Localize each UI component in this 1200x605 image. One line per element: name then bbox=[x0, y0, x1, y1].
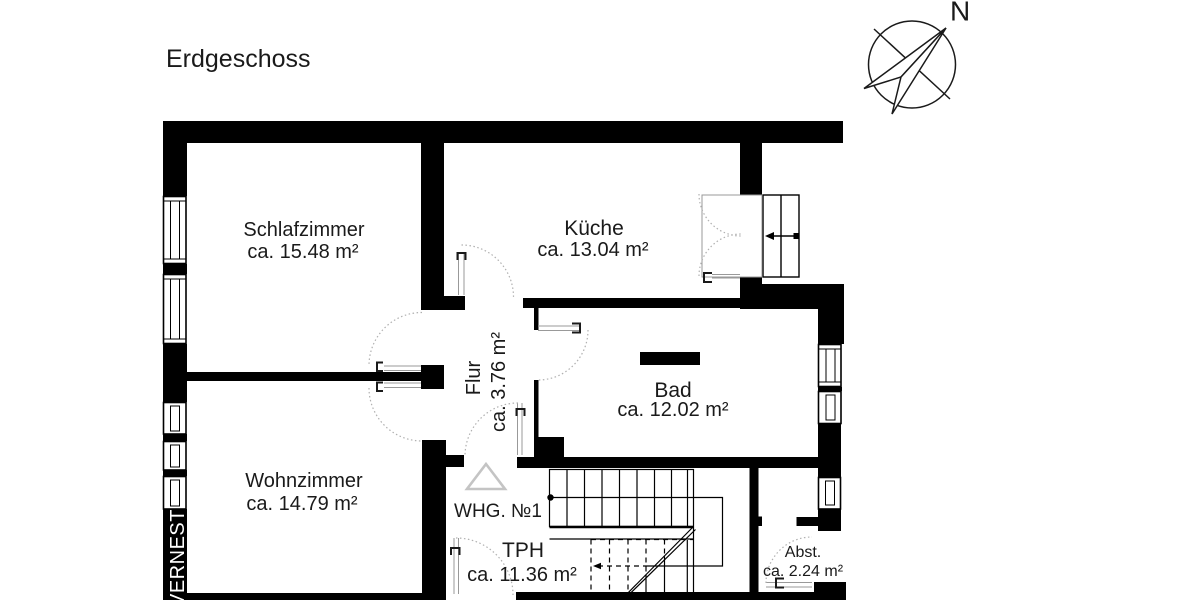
svg-text:Küche: Küche bbox=[564, 217, 624, 240]
svg-text:ca. 12.02 m²: ca. 12.02 m² bbox=[617, 399, 729, 421]
svg-text:Erdgeschoss: Erdgeschoss bbox=[166, 45, 311, 73]
svg-text:ca. 2.24 m²: ca. 2.24 m² bbox=[763, 563, 844, 580]
svg-text:ca. 14.79 m²: ca. 14.79 m² bbox=[246, 493, 358, 515]
svg-text:WHG. №1: WHG. №1 bbox=[454, 501, 542, 522]
svg-text:ca. 15.48 m²: ca. 15.48 m² bbox=[247, 241, 359, 263]
svg-text:TPH: TPH bbox=[502, 539, 544, 562]
svg-text:ca. 11.36 m²: ca. 11.36 m² bbox=[467, 564, 577, 586]
svg-text:ca. 13.04 m²: ca. 13.04 m² bbox=[537, 239, 649, 261]
svg-text:N: N bbox=[950, 0, 970, 27]
svg-text:Abst.: Abst. bbox=[785, 544, 821, 561]
svg-text:VERNEST: VERNEST bbox=[167, 509, 189, 600]
svg-text:Flur: Flur bbox=[463, 360, 485, 395]
svg-text:Schlafzimmer: Schlafzimmer bbox=[243, 219, 364, 241]
svg-text:Wohnzimmer: Wohnzimmer bbox=[245, 470, 363, 492]
svg-text:ca. 3.76 m²: ca. 3.76 m² bbox=[488, 332, 510, 432]
